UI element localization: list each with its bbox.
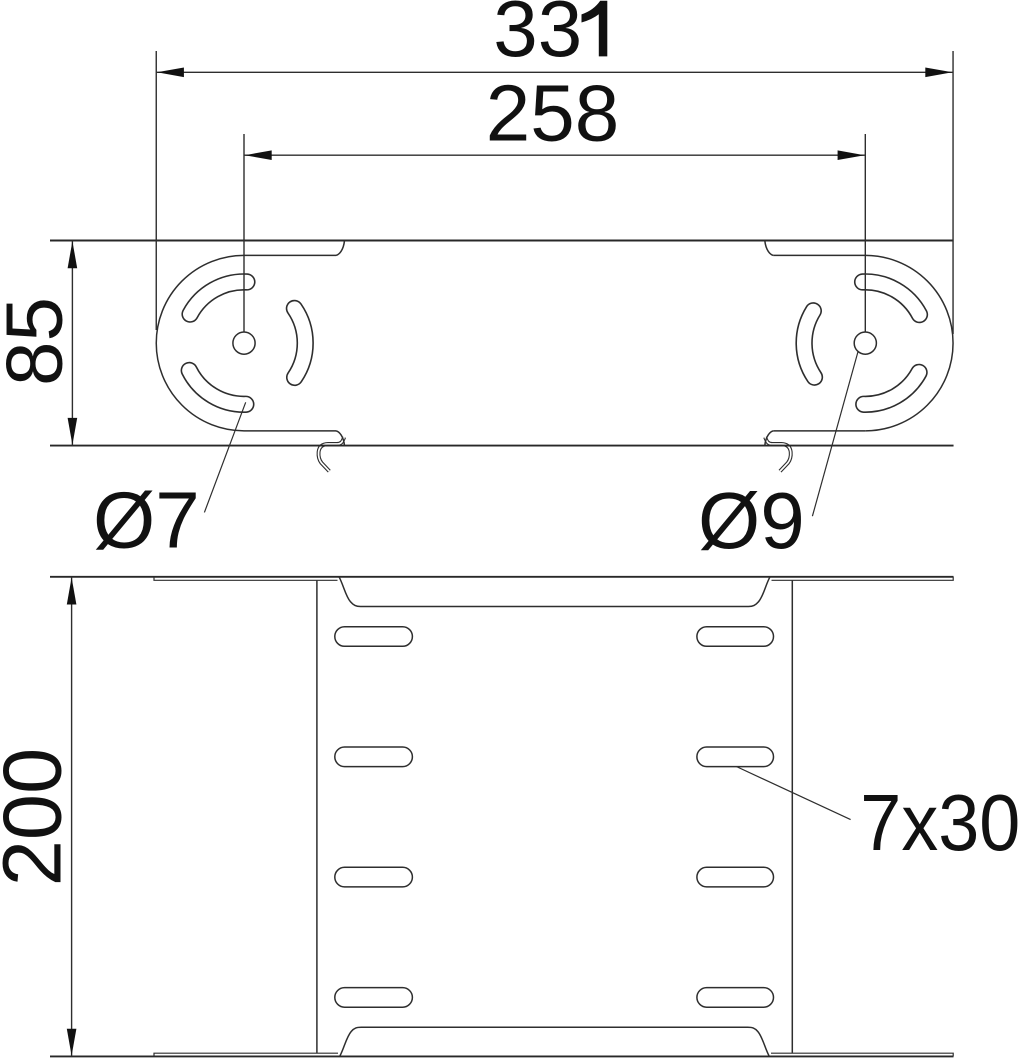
svg-text:200: 200 bbox=[0, 748, 79, 886]
svg-text:Ø9: Ø9 bbox=[698, 476, 805, 565]
svg-text:Ø7: Ø7 bbox=[93, 476, 200, 565]
svg-text:85: 85 bbox=[0, 297, 79, 386]
svg-text:258: 258 bbox=[486, 69, 619, 158]
svg-text:33: 33 bbox=[493, 0, 582, 73]
svg-text:7x30: 7x30 bbox=[860, 778, 1020, 867]
